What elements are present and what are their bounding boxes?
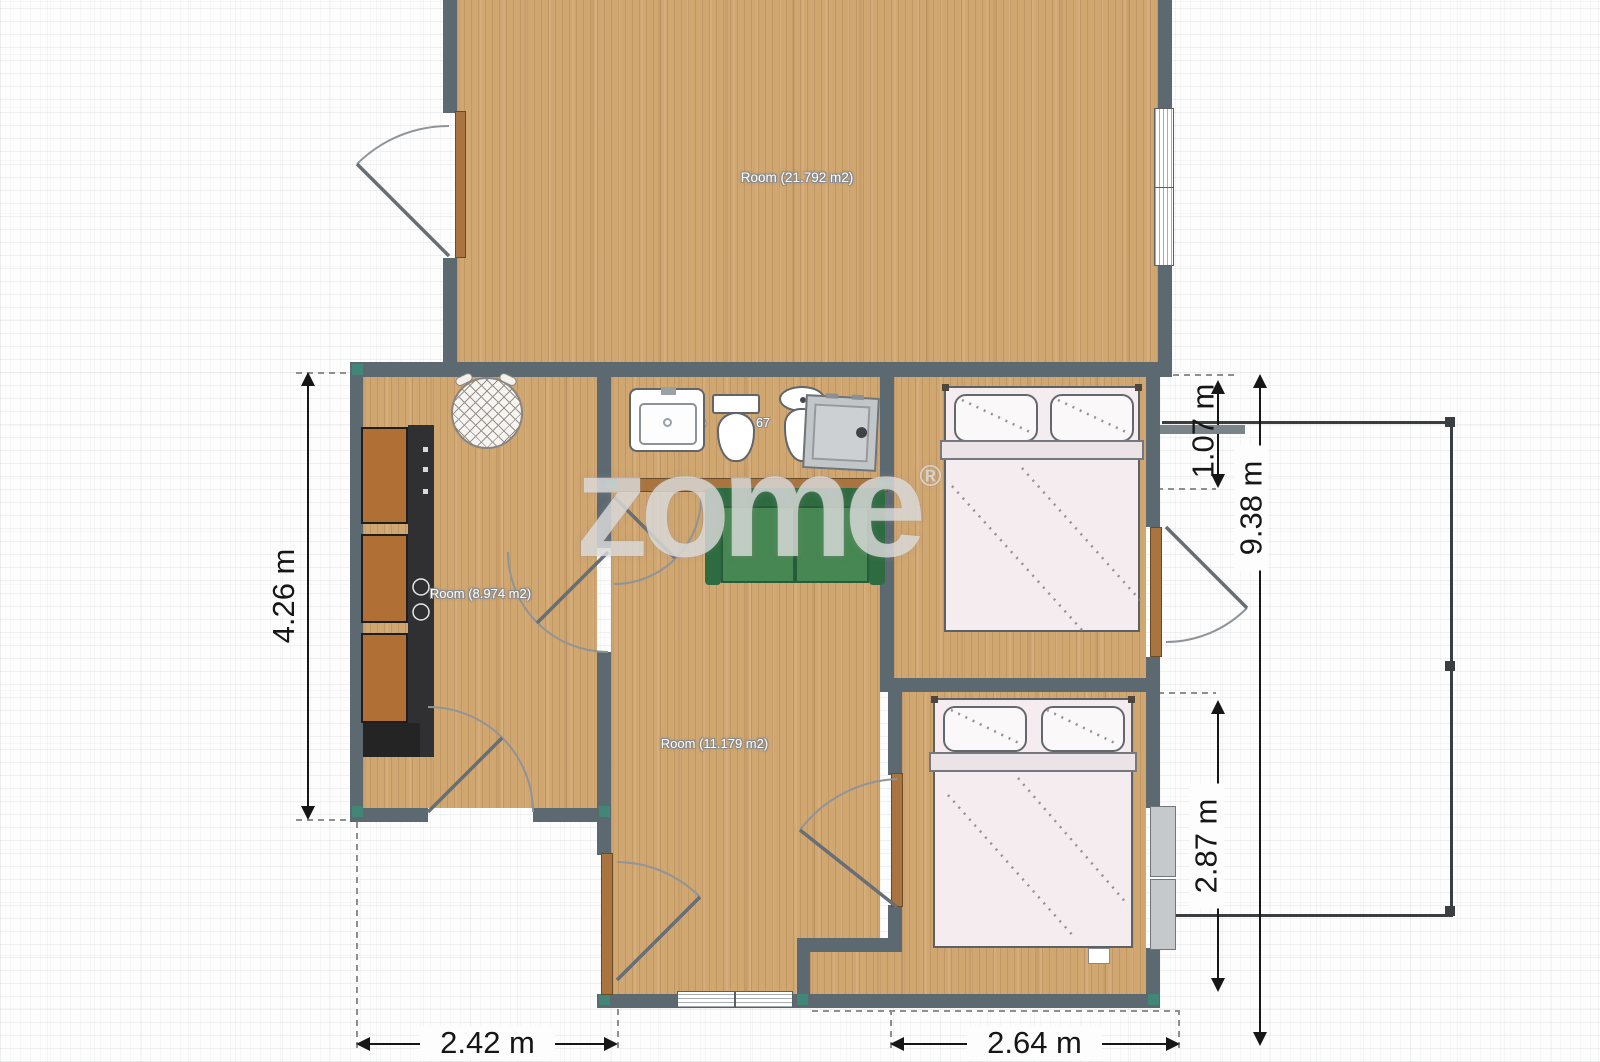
bed-post [1135,384,1142,391]
kitchen-cabinet[interactable] [361,534,408,623]
wall[interactable] [443,0,457,113]
room-living-label: Room (21.792 m2) [712,170,882,185]
wall[interactable] [810,994,1160,1008]
extension-line [812,1010,1180,1012]
extension-line [890,1012,892,1048]
wall[interactable] [888,905,902,938]
shower-handle [852,395,864,401]
zome-watermark: zome® [575,432,941,580]
bed-headband [940,440,1144,460]
wall[interactable] [880,678,1160,692]
wall-joint [1148,994,1159,1005]
kitchen-knob [423,467,428,472]
toilet[interactable] [712,394,760,414]
window[interactable] [1150,879,1176,950]
wall[interactable] [443,258,457,362]
wall-joint [352,806,363,817]
door-arc [357,126,449,164]
selection-handle[interactable] [1445,417,1455,427]
pillow [954,394,1038,442]
door-leaf[interactable] [455,111,466,258]
wall-joint [797,994,808,1005]
kitchen-knob [423,489,428,494]
shower-handle [826,393,838,399]
pillow [1041,706,1125,752]
wall[interactable] [1146,377,1160,527]
kitchen-knob [423,447,428,452]
window[interactable] [1154,108,1174,188]
room-kitchen-label: Room (8.974 m2) [418,586,543,601]
bed-double[interactable] [944,386,1140,632]
sink-faucet [661,387,676,395]
door-leaf-line [357,164,449,256]
door-leaf[interactable] [601,853,613,995]
wall-joint [352,364,363,375]
dimension-label-bottom-right[interactable]: 2.64 m [967,1026,1102,1060]
wall[interactable] [888,692,902,775]
room-bedroom-bottom-floor[interactable] [810,952,902,994]
registered-mark: ® [919,460,941,493]
bed-headband [929,752,1137,772]
dimension-label-right-upper[interactable]: 1.07 m [1187,374,1219,489]
wall-joint [599,994,610,1005]
dining-chair[interactable] [451,377,523,449]
wall[interactable] [797,938,902,952]
door-leaf[interactable] [1150,527,1162,657]
extension-line [1178,1012,1180,1048]
kitchen-cabinet[interactable] [361,427,408,524]
dimension-label-right-total[interactable]: 9.38 m [1235,446,1269,571]
window[interactable] [1150,806,1176,877]
wall[interactable] [1146,657,1160,692]
pillow [943,706,1027,752]
dimension-label-bottom-left[interactable]: 2.42 m [420,1026,555,1060]
window[interactable] [735,991,793,1008]
nightstand[interactable] [1088,948,1110,964]
selection-handle[interactable] [1445,906,1455,916]
bed-post [931,696,938,703]
floorplan-canvas: Ro 67 [0,0,1600,1062]
bed-post [942,384,949,391]
wall[interactable] [1158,0,1172,108]
kitchen-cabinet[interactable] [361,633,408,723]
dimension-label-left[interactable]: 4.26 m [267,521,299,671]
extension-line [356,822,358,1048]
dimension-label-right-lower[interactable]: 2.87 m [1190,784,1224,909]
extension-line [296,819,352,821]
wall-joint [599,806,610,817]
watermark-text: zome [575,423,917,588]
wall[interactable] [350,362,1172,377]
kitchen-stove[interactable] [363,723,420,757]
wall[interactable] [597,652,611,855]
bed-post [1128,696,1135,703]
room-hall-label: Room (11.179 m2) [642,736,787,751]
wall[interactable] [1146,692,1160,808]
extension-line [1158,692,1216,694]
window[interactable] [1154,187,1174,266]
bed-double[interactable] [933,698,1133,948]
door-leaf[interactable] [891,773,903,907]
selection-handle[interactable] [1445,661,1455,671]
wall[interactable] [1158,266,1172,376]
pillow [1050,394,1134,442]
window[interactable] [677,991,735,1008]
extension-line [296,372,352,374]
